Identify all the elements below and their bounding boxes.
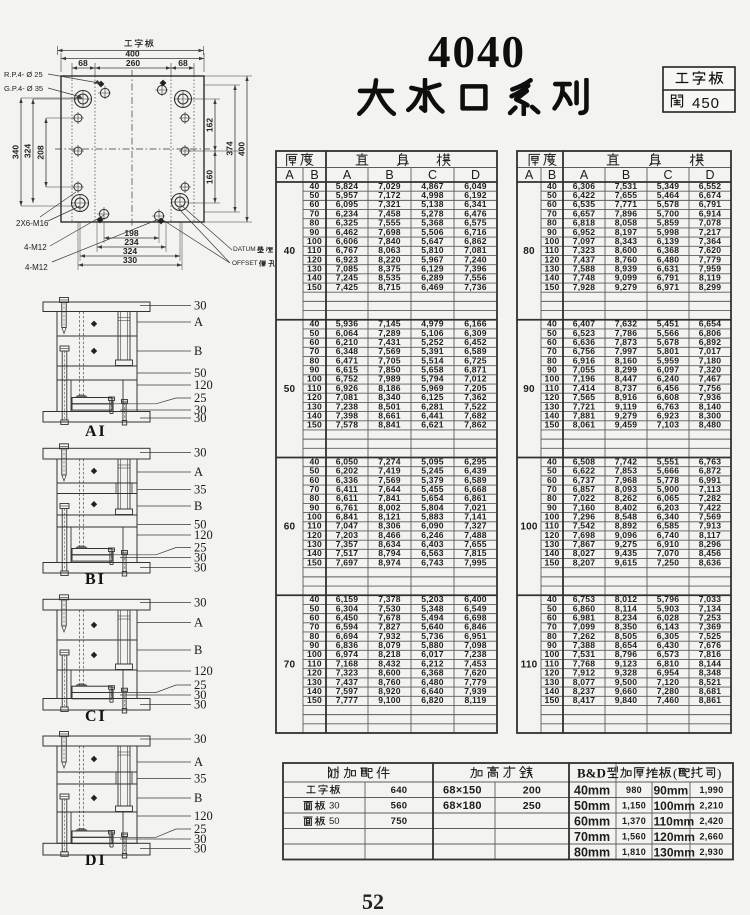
svg-text:50: 50 xyxy=(284,384,296,395)
svg-text:A: A xyxy=(343,168,352,182)
svg-text:2,660: 2,660 xyxy=(699,832,723,842)
svg-text:7,250: 7,250 xyxy=(657,557,680,567)
svg-text:B: B xyxy=(194,791,202,805)
svg-text:2,210: 2,210 xyxy=(699,801,723,811)
svg-text:4-M12: 4-M12 xyxy=(25,263,48,272)
svg-text:A: A xyxy=(194,755,203,769)
svg-text:30: 30 xyxy=(194,561,207,575)
svg-text:7,697: 7,697 xyxy=(336,557,359,567)
svg-text:R.P.4- Ø 25: R.P.4- Ø 25 xyxy=(4,70,43,79)
svg-text:8,715: 8,715 xyxy=(378,282,401,292)
svg-text:120: 120 xyxy=(194,809,213,823)
svg-text:560: 560 xyxy=(391,801,408,812)
svg-text:150: 150 xyxy=(307,557,322,567)
svg-text:8,861: 8,861 xyxy=(699,695,722,705)
svg-text:35: 35 xyxy=(194,483,207,497)
svg-text:CI: CI xyxy=(85,708,107,725)
svg-text:7,103: 7,103 xyxy=(657,420,680,430)
svg-text:110: 110 xyxy=(521,659,538,670)
svg-text:8,417: 8,417 xyxy=(573,695,596,705)
svg-text:8,636: 8,636 xyxy=(699,557,722,567)
svg-text:324: 324 xyxy=(23,144,33,158)
svg-text:374: 374 xyxy=(225,141,235,155)
svg-text:30: 30 xyxy=(329,801,340,812)
svg-text:D: D xyxy=(705,168,714,182)
svg-text:2,930: 2,930 xyxy=(699,847,723,857)
svg-text:200: 200 xyxy=(523,785,541,797)
svg-text:2,420: 2,420 xyxy=(699,816,723,826)
svg-text:A: A xyxy=(194,465,203,479)
svg-text:30: 30 xyxy=(194,596,207,610)
svg-text:30: 30 xyxy=(194,698,207,712)
svg-text:750: 750 xyxy=(391,816,408,827)
svg-text:150: 150 xyxy=(545,557,560,567)
svg-text:40mm: 40mm xyxy=(574,784,610,798)
svg-text:9,840: 9,840 xyxy=(615,695,638,705)
svg-text:A: A xyxy=(194,616,203,630)
svg-text:DI: DI xyxy=(85,852,107,869)
svg-text:80: 80 xyxy=(523,246,535,257)
svg-text:8,480: 8,480 xyxy=(699,420,722,430)
svg-text:B: B xyxy=(385,168,393,182)
svg-text:G.P.4- Ø 35: G.P.4- Ø 35 xyxy=(4,84,43,93)
svg-text:2X6-M16: 2X6-M16 xyxy=(16,219,49,228)
svg-text:150: 150 xyxy=(545,420,560,430)
svg-text:30: 30 xyxy=(194,299,207,313)
svg-text:8,974: 8,974 xyxy=(378,557,401,567)
svg-text:7,425: 7,425 xyxy=(336,282,359,292)
svg-text:B: B xyxy=(622,168,630,182)
svg-text:70: 70 xyxy=(284,659,296,670)
svg-text:70mm: 70mm xyxy=(574,830,610,844)
svg-text:BI: BI xyxy=(85,571,106,588)
svg-text:450: 450 xyxy=(692,95,720,112)
svg-text:40: 40 xyxy=(284,246,296,257)
svg-text:640: 640 xyxy=(391,785,408,796)
svg-text:120: 120 xyxy=(194,378,213,392)
svg-text:B: B xyxy=(310,168,318,182)
svg-text:6,621: 6,621 xyxy=(421,420,444,430)
svg-text:150: 150 xyxy=(307,695,322,705)
svg-text:1,370: 1,370 xyxy=(622,816,646,826)
svg-text:7,928: 7,928 xyxy=(573,282,596,292)
svg-text:60: 60 xyxy=(284,522,296,533)
svg-text:6,820: 6,820 xyxy=(421,695,444,705)
svg-text:C: C xyxy=(428,168,437,182)
svg-text:8,841: 8,841 xyxy=(378,420,401,430)
svg-text:162: 162 xyxy=(205,118,215,132)
svg-text:8,207: 8,207 xyxy=(573,557,596,567)
svg-text:340: 340 xyxy=(11,145,21,159)
svg-text:(: ( xyxy=(673,766,677,781)
svg-text:7,777: 7,777 xyxy=(336,695,359,705)
svg-text:30: 30 xyxy=(194,732,207,746)
svg-text:400: 400 xyxy=(237,142,247,156)
svg-text:8,061: 8,061 xyxy=(573,420,596,430)
svg-text:30: 30 xyxy=(194,446,207,460)
svg-text:9,279: 9,279 xyxy=(615,282,638,292)
svg-text:B: B xyxy=(548,168,556,182)
svg-text:68: 68 xyxy=(178,58,188,68)
svg-text:B: B xyxy=(194,499,202,513)
svg-text:68×150: 68×150 xyxy=(443,785,482,797)
svg-text:100mm: 100mm xyxy=(654,799,695,813)
svg-text:150: 150 xyxy=(545,282,560,292)
svg-text:400: 400 xyxy=(125,49,139,59)
svg-text:100: 100 xyxy=(520,522,538,533)
svg-text:6,971: 6,971 xyxy=(657,282,680,292)
svg-text:90: 90 xyxy=(523,384,535,395)
svg-text:7,862: 7,862 xyxy=(464,420,487,430)
svg-text:35: 35 xyxy=(194,772,207,786)
svg-text:C: C xyxy=(663,168,672,182)
svg-text:4-M12: 4-M12 xyxy=(24,243,47,252)
svg-text:50: 50 xyxy=(329,816,340,827)
svg-text:7,578: 7,578 xyxy=(336,420,359,430)
svg-text:A: A xyxy=(194,315,203,329)
svg-text:): ) xyxy=(717,766,721,781)
svg-text:120: 120 xyxy=(194,664,213,678)
svg-text:110mm: 110mm xyxy=(654,815,695,829)
svg-text:AI: AI xyxy=(85,423,107,440)
svg-text:9,100: 9,100 xyxy=(378,695,401,705)
svg-text:7,736: 7,736 xyxy=(464,282,487,292)
svg-text:1,810: 1,810 xyxy=(622,847,646,857)
svg-text:60mm: 60mm xyxy=(574,815,610,829)
svg-text:30: 30 xyxy=(194,842,207,856)
svg-text:A: A xyxy=(525,168,534,182)
svg-text:6,469: 6,469 xyxy=(421,282,444,292)
svg-text:68: 68 xyxy=(78,58,88,68)
svg-text:B: B xyxy=(194,643,202,657)
svg-text:B&D: B&D xyxy=(577,766,606,781)
svg-text:D: D xyxy=(471,168,480,182)
svg-text:50mm: 50mm xyxy=(574,799,610,813)
svg-text:250: 250 xyxy=(523,800,541,812)
svg-text:68×180: 68×180 xyxy=(443,800,482,812)
svg-text:1,150: 1,150 xyxy=(622,801,646,811)
svg-text:150: 150 xyxy=(307,420,322,430)
svg-text:B: B xyxy=(194,344,202,358)
svg-text:330: 330 xyxy=(123,255,137,265)
svg-text:150: 150 xyxy=(307,282,322,292)
svg-text:150: 150 xyxy=(545,695,560,705)
svg-text:8,119: 8,119 xyxy=(464,695,486,705)
svg-text:80mm: 80mm xyxy=(574,846,610,860)
svg-text:1,990: 1,990 xyxy=(699,785,723,795)
svg-text:260: 260 xyxy=(126,58,140,68)
svg-text:8,299: 8,299 xyxy=(699,282,722,292)
svg-text:A: A xyxy=(285,168,294,182)
svg-text:7,995: 7,995 xyxy=(464,557,487,567)
svg-text:160: 160 xyxy=(205,170,215,184)
svg-text:208: 208 xyxy=(36,145,46,159)
svg-text:A: A xyxy=(580,168,589,182)
svg-text:120mm: 120mm xyxy=(654,830,695,844)
svg-text:1,560: 1,560 xyxy=(622,832,646,842)
svg-text:130mm: 130mm xyxy=(654,846,695,860)
svg-text:6,743: 6,743 xyxy=(421,557,444,567)
svg-text:30: 30 xyxy=(194,411,207,425)
svg-text:9,615: 9,615 xyxy=(615,557,638,567)
svg-text:90mm: 90mm xyxy=(654,784,689,798)
svg-text:9,459: 9,459 xyxy=(615,420,638,430)
svg-text:7,460: 7,460 xyxy=(657,695,680,705)
svg-text:980: 980 xyxy=(626,785,642,795)
